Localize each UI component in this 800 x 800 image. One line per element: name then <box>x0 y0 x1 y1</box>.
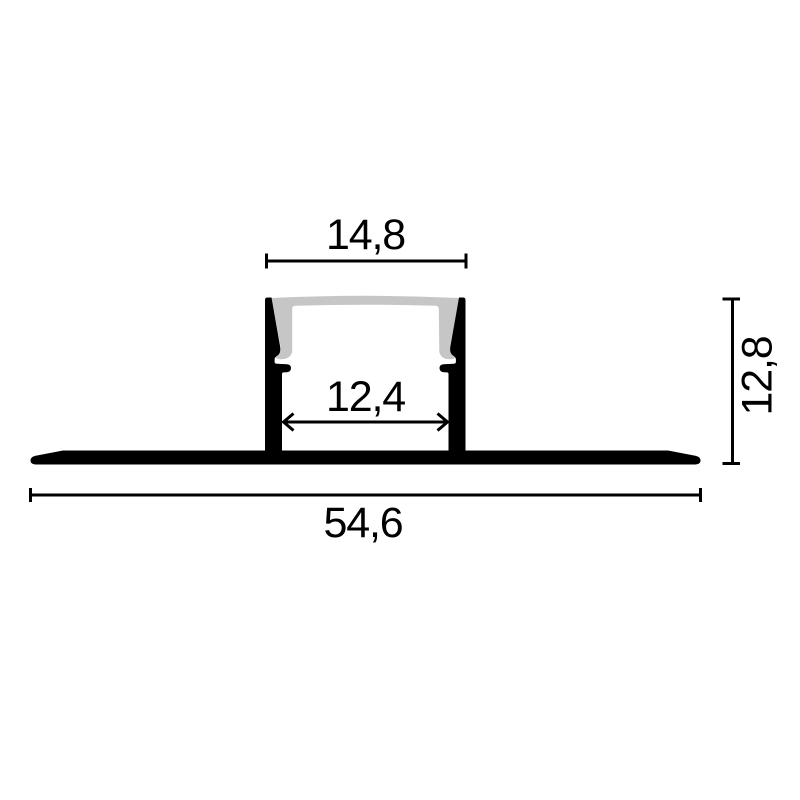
svg-text:14,8: 14,8 <box>326 211 405 259</box>
svg-text:54,6: 54,6 <box>324 499 403 547</box>
svg-text:12,4: 12,4 <box>326 373 405 421</box>
svg-text:12,8: 12,8 <box>734 336 782 415</box>
